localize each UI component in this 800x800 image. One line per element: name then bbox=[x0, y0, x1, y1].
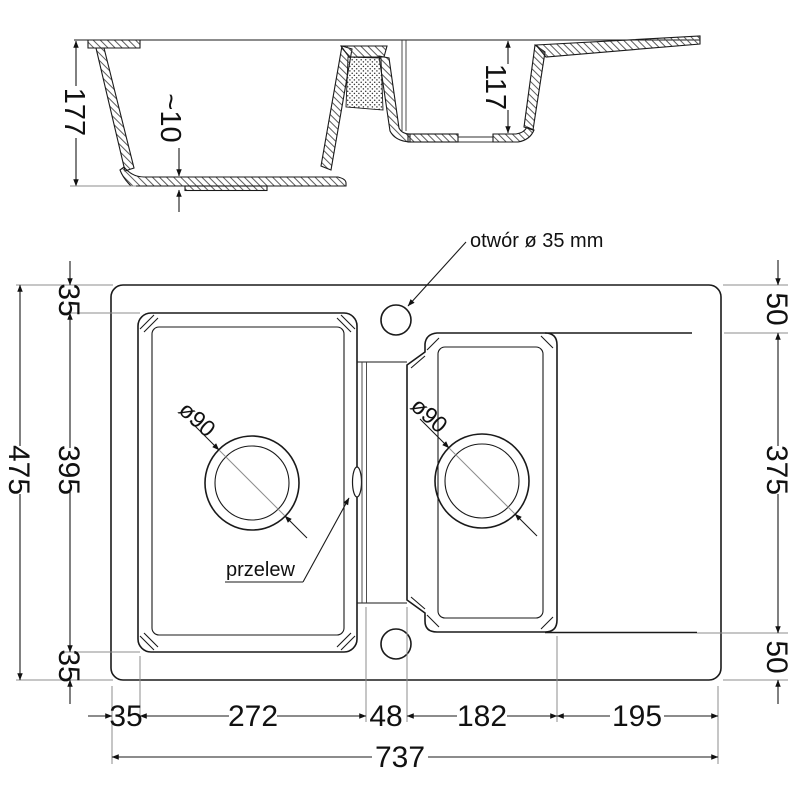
dim-small-bowl-depth: 117 bbox=[479, 41, 511, 133]
overflow-label: przelew bbox=[226, 559, 295, 581]
tap-hole-label: otwór ø 35 mm bbox=[470, 230, 603, 252]
drainboard bbox=[545, 333, 697, 633]
dim-bottom-margin-right: 50 bbox=[760, 640, 793, 704]
section-small-bowl-bottom-left bbox=[408, 134, 458, 142]
dim-drainer-span: 375 bbox=[760, 333, 793, 633]
dim-bottom-margin-right-label: 50 bbox=[760, 640, 793, 673]
dim-overall-width-label: 737 bbox=[375, 741, 425, 774]
dim-bowl-right-width-label: 182 bbox=[457, 700, 507, 733]
section-view: 177 ~10 117 bbox=[58, 36, 700, 212]
right-bowl-inner bbox=[438, 347, 543, 618]
sink-outline bbox=[111, 285, 721, 680]
section-left-wall bbox=[96, 48, 134, 171]
section-right-wall bbox=[524, 45, 545, 130]
dim-bowl-right-width: 182 bbox=[407, 700, 557, 733]
dim-bowl-left-width-label: 272 bbox=[228, 700, 278, 733]
plan-view: otwór ø 35 mm ø90 przel bbox=[2, 230, 793, 774]
dim-bottom-margin-left: 35 bbox=[52, 649, 85, 704]
dim-top-margin-right: 50 bbox=[760, 260, 793, 326]
tap-hole-top bbox=[381, 305, 411, 335]
dim-bowl-height-label: 395 bbox=[52, 445, 85, 495]
left-drain-dim: ø90 bbox=[174, 396, 307, 538]
dim-bowl-left-width: 272 bbox=[140, 700, 366, 733]
dim-bottom-thickness: ~10 bbox=[154, 93, 186, 212]
section-divider-right-wall bbox=[379, 56, 410, 142]
section-left-rim bbox=[88, 40, 140, 48]
section-divider-core bbox=[346, 57, 383, 110]
right-drain-dim: ø90 bbox=[406, 392, 537, 536]
right-bowl: ø90 bbox=[406, 333, 557, 632]
right-bowl-corner-chamfers bbox=[411, 336, 553, 629]
dim-divider-width-label: 48 bbox=[369, 700, 402, 733]
tap-hole-callout: otwór ø 35 mm bbox=[408, 230, 603, 306]
dim-top-margin-left: 35 bbox=[52, 261, 85, 317]
dim-overall-height-label: 475 bbox=[2, 445, 35, 495]
right-drain-label: ø90 bbox=[406, 392, 453, 438]
section-drainboard-slab bbox=[536, 36, 700, 57]
dim-bottom-thickness-label: ~10 bbox=[154, 93, 186, 142]
dim-top-margin-left-label: 35 bbox=[52, 283, 85, 316]
section-small-bowl-recess bbox=[458, 137, 493, 142]
dim-top-margin-right-label: 50 bbox=[760, 292, 793, 325]
left-bowl-outer bbox=[138, 313, 357, 652]
overflow-slot bbox=[353, 467, 362, 497]
dim-overall-height: 475 bbox=[2, 285, 35, 680]
section-small-bowl-bottom-right bbox=[493, 127, 534, 142]
right-bowl-outer bbox=[407, 333, 557, 632]
bowl-channel bbox=[357, 362, 407, 603]
dim-drainer-span-label: 375 bbox=[760, 445, 793, 495]
left-drain-label: ø90 bbox=[174, 396, 221, 442]
section-drain-lip bbox=[185, 186, 267, 191]
dim-left-margin-label: 35 bbox=[109, 700, 142, 733]
sink-technical-drawing: 177 ~10 117 otwór ø 35 mm bbox=[0, 0, 800, 800]
overflow-callout: przelew bbox=[225, 498, 349, 582]
dim-bottom-margin-left-label: 35 bbox=[52, 649, 85, 682]
dim-drainer-width: 195 bbox=[557, 700, 718, 733]
left-bowl-corner-chamfers bbox=[140, 315, 355, 650]
dim-total-depth-label: 177 bbox=[58, 88, 90, 136]
dim-overall-width: 737 bbox=[112, 741, 718, 774]
dim-divider-width: 48 bbox=[369, 700, 402, 733]
section-bottom-slab bbox=[120, 167, 346, 186]
dim-left-margin: 35 bbox=[88, 700, 143, 733]
extension-lines bbox=[16, 285, 788, 764]
left-bowl: ø90 bbox=[138, 313, 357, 652]
left-bowl-inner bbox=[152, 327, 344, 635]
dim-drainer-width-label: 195 bbox=[612, 700, 662, 733]
dim-bowl-height: 395 bbox=[52, 313, 85, 652]
section-divider-cap bbox=[341, 46, 387, 57]
dim-small-bowl-depth-label: 117 bbox=[479, 64, 511, 110]
